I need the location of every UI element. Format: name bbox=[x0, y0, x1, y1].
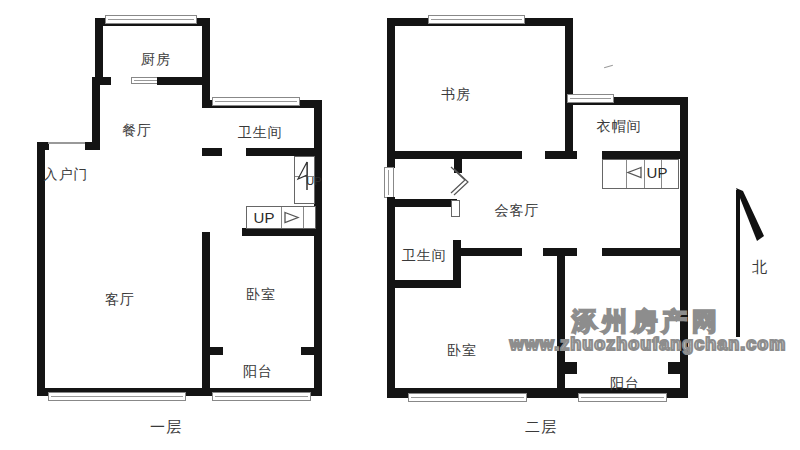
study-window bbox=[428, 15, 525, 24]
stair-step-line bbox=[644, 160, 645, 188]
wall-balcony1-stub-left bbox=[202, 347, 223, 355]
room-label-entry-door: 入户门 bbox=[44, 166, 89, 184]
stairs1-up-side-label: UP bbox=[254, 209, 275, 226]
stair-step-line bbox=[281, 207, 282, 228]
wall-bath2-bottom bbox=[390, 280, 457, 288]
room-label-living: 客厅 bbox=[105, 291, 135, 309]
wall-mid-left bbox=[390, 151, 522, 159]
room-label-reception: 会客厅 bbox=[495, 202, 540, 220]
stairs-direction-arrow-icon bbox=[283, 211, 300, 224]
wall-bedroom2-balcony-divider bbox=[557, 253, 565, 396]
kitchen-window bbox=[105, 15, 197, 24]
wall-bath1-bottom-stub bbox=[202, 148, 222, 156]
wall-reception-right bbox=[602, 248, 688, 256]
room-label-study: 书房 bbox=[441, 86, 471, 104]
room-label-bedroom1: 卧室 bbox=[246, 286, 276, 304]
bedroom2-window bbox=[408, 393, 527, 402]
room-label-bathroom1: 卫生间 bbox=[238, 124, 283, 142]
balcony1-window bbox=[212, 392, 311, 401]
wall-bath1-bottom bbox=[246, 148, 322, 156]
reception-side-window bbox=[384, 167, 394, 198]
wall-balcony1-stub-right bbox=[301, 347, 322, 355]
room-label-balcony1: 阳台 bbox=[243, 363, 273, 381]
room-label-bathroom2: 卫生间 bbox=[402, 247, 447, 265]
stairs2-up-label: UP bbox=[647, 164, 668, 181]
stairs1-up-label: UP bbox=[306, 175, 321, 187]
wall-mid-center bbox=[545, 151, 577, 159]
room-label-cloakroom: 衣帽间 bbox=[597, 118, 642, 136]
stair-step-line bbox=[303, 207, 304, 228]
wall-floor2-left-upper bbox=[387, 18, 395, 168]
wall-reception-left bbox=[461, 248, 522, 256]
stairs-direction-arrow-icon bbox=[626, 166, 643, 179]
wall-study-right bbox=[565, 18, 573, 159]
entry-door-opening-line bbox=[48, 142, 87, 144]
bath2-door-jamb bbox=[451, 200, 460, 217]
stray-mark bbox=[604, 65, 613, 68]
floor1-name: 一层 bbox=[150, 418, 182, 437]
wall-stairs2-top bbox=[602, 151, 688, 159]
wall-floor2-left-lower bbox=[387, 197, 395, 396]
room-label-dining: 餐厅 bbox=[122, 122, 152, 140]
watermark-site-url: www.zhuozhoufangchan.com bbox=[510, 334, 786, 355]
balcony2-window bbox=[578, 393, 667, 402]
wall-kitchen-right bbox=[202, 18, 210, 108]
living-window bbox=[48, 392, 186, 401]
wall-balcony2-stub-left bbox=[557, 362, 577, 374]
wall-entry-right bbox=[85, 142, 100, 150]
wall-balcony2-stub-right bbox=[668, 362, 688, 374]
kitchen-sliding-door bbox=[131, 77, 160, 84]
wall-stairs1-bottom bbox=[242, 228, 322, 236]
floor2-name: 二层 bbox=[525, 418, 557, 437]
north-label: 北 bbox=[752, 258, 768, 277]
room-label-bedroom2: 卧室 bbox=[447, 342, 477, 360]
wall-kitchen-left bbox=[95, 18, 103, 84]
room-label-kitchen: 厨房 bbox=[141, 51, 171, 69]
wall-dining-left bbox=[92, 77, 100, 150]
wall-living-bedroom-divider bbox=[202, 232, 210, 388]
bath1-window bbox=[212, 97, 300, 106]
cloakroom-window bbox=[567, 94, 614, 103]
wall-bath2-top bbox=[387, 199, 457, 207]
room-label-balcony2: 阳台 bbox=[610, 375, 640, 393]
floorplan-canvas: UP UP 厨房 餐厅 卫生间 入户门 客厅 卧室 阳台 一层 UP bbox=[0, 0, 800, 450]
door-swing-icon bbox=[448, 165, 470, 199]
